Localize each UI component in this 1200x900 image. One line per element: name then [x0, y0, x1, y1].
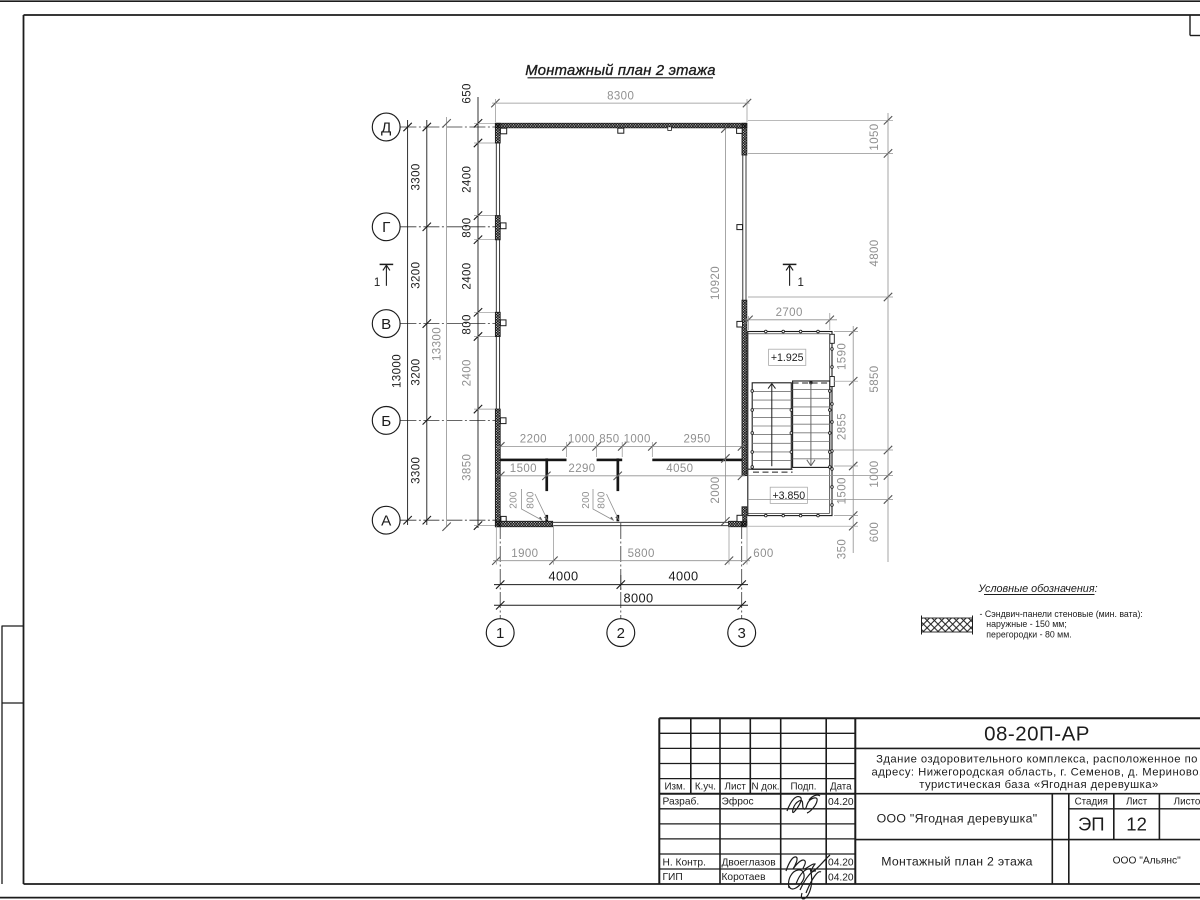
svg-text:ООО "Ягодная деревушка": ООО "Ягодная деревушка"	[877, 812, 1038, 826]
svg-text:2700: 2700	[776, 307, 803, 319]
svg-text:2290: 2290	[568, 463, 595, 475]
svg-text:Монтажный план 2 этажа: Монтажный план 2 этажа	[525, 63, 715, 79]
svg-text:А: А	[381, 513, 392, 530]
svg-text:- Сэндвич-панели стеновые (мин: - Сэндвич-панели стеновые (мин. вата):	[980, 609, 1143, 619]
svg-text:3300: 3300	[411, 163, 423, 190]
svg-text:4050: 4050	[666, 463, 693, 475]
svg-text:перегородки - 80 мм.: перегородки - 80 мм.	[986, 630, 1071, 640]
svg-text:08-20П-АР: 08-20П-АР	[984, 723, 1090, 746]
svg-text:2000: 2000	[710, 476, 722, 503]
svg-text:3200: 3200	[411, 358, 423, 385]
svg-text:1900: 1900	[511, 548, 538, 560]
svg-text:4000: 4000	[548, 569, 578, 584]
svg-text:3200: 3200	[411, 262, 423, 289]
svg-text:Лист: Лист	[1126, 797, 1148, 808]
svg-text:200: 200	[581, 491, 592, 509]
svg-text:N док.: N док.	[752, 782, 780, 793]
svg-text:600: 600	[753, 548, 773, 560]
svg-text:04.20: 04.20	[828, 872, 854, 883]
svg-text:850: 850	[599, 434, 619, 446]
svg-text:4000: 4000	[668, 569, 698, 584]
svg-text:1590: 1590	[837, 343, 849, 370]
svg-text:1000: 1000	[869, 460, 881, 487]
svg-text:1050: 1050	[869, 123, 881, 150]
svg-text:+3.850: +3.850	[772, 490, 805, 502]
svg-text:ГИП: ГИП	[663, 872, 683, 883]
svg-text:Н. Контр.: Н. Контр.	[663, 857, 706, 868]
svg-text:650: 650	[462, 83, 474, 103]
svg-text:туристическая база «Ягодная де: туристическая база «Ягодная деревушка»	[919, 779, 1159, 791]
svg-text:8000: 8000	[624, 590, 654, 605]
svg-text:2855: 2855	[837, 413, 849, 440]
svg-text:Листов: Листов	[1174, 797, 1200, 808]
svg-text:04.20: 04.20	[828, 797, 854, 808]
svg-text:8300: 8300	[607, 90, 634, 102]
svg-text:350: 350	[837, 539, 849, 559]
svg-text:2200: 2200	[520, 434, 547, 446]
svg-text:Дата: Дата	[830, 782, 852, 793]
svg-text:1000: 1000	[624, 434, 651, 446]
svg-text:1500: 1500	[837, 477, 849, 504]
svg-text:3300: 3300	[411, 457, 423, 484]
svg-text:600: 600	[869, 522, 881, 542]
svg-text:1500: 1500	[510, 463, 537, 475]
svg-text:04.20: 04.20	[828, 858, 854, 869]
svg-text:Стадия: Стадия	[1075, 797, 1108, 808]
svg-text:Д: Д	[381, 119, 391, 136]
svg-text:13000: 13000	[391, 354, 403, 388]
svg-text:2400: 2400	[462, 262, 474, 289]
svg-text:10920: 10920	[710, 266, 722, 300]
svg-text:Двоеглазов: Двоеглазов	[722, 857, 776, 868]
svg-text:Б: Б	[381, 413, 391, 430]
svg-text:800: 800	[462, 217, 474, 237]
svg-text:2: 2	[617, 625, 625, 642]
svg-text:Здание оздоровительного компле: Здание оздоровительного комплекса, распо…	[876, 754, 1198, 766]
svg-text:Коротаев: Коротаев	[722, 872, 766, 883]
svg-text:2400: 2400	[462, 359, 474, 386]
svg-text:Г: Г	[382, 219, 390, 236]
svg-text:Разраб.: Разраб.	[663, 796, 700, 808]
svg-text:5800: 5800	[628, 548, 655, 560]
svg-text:Эфрос: Эфрос	[722, 796, 754, 808]
svg-text:ООО "Альянс": ООО "Альянс"	[1113, 856, 1182, 867]
svg-text:800: 800	[526, 491, 537, 509]
svg-text:Условные обозначения:: Условные обозначения:	[977, 583, 1097, 595]
svg-text:Монтажный план 2 этажа: Монтажный план 2 этажа	[881, 855, 1033, 869]
svg-text:Лист: Лист	[725, 782, 747, 793]
svg-text:1000: 1000	[568, 434, 595, 446]
svg-text:200: 200	[509, 491, 520, 509]
svg-text:4800: 4800	[869, 239, 881, 266]
svg-text:3: 3	[738, 625, 746, 642]
svg-text:В: В	[381, 316, 391, 333]
svg-text:12: 12	[1126, 814, 1147, 835]
svg-text:800: 800	[597, 491, 608, 509]
svg-text:Изм.: Изм.	[665, 782, 686, 793]
svg-text:13300: 13300	[431, 327, 443, 361]
svg-text:Подп.: Подп.	[790, 782, 816, 793]
svg-text:1: 1	[496, 625, 504, 642]
svg-text:5850: 5850	[869, 365, 881, 392]
svg-text:2950: 2950	[684, 434, 711, 446]
svg-text:наружные - 150 мм;: наружные - 150 мм;	[986, 619, 1066, 629]
svg-text:К.уч.: К.уч.	[695, 782, 716, 793]
svg-text:3850: 3850	[462, 454, 474, 481]
svg-text:2400: 2400	[462, 166, 474, 193]
svg-text:ЭП: ЭП	[1078, 814, 1105, 835]
svg-text:адресу: Нижегородская область,: адресу: Нижегородская область, г. Семено…	[871, 766, 1200, 778]
svg-text:800: 800	[462, 314, 474, 334]
svg-text:+1.925: +1.925	[771, 352, 804, 364]
svg-text:1: 1	[374, 277, 380, 289]
svg-text:1: 1	[798, 277, 804, 289]
